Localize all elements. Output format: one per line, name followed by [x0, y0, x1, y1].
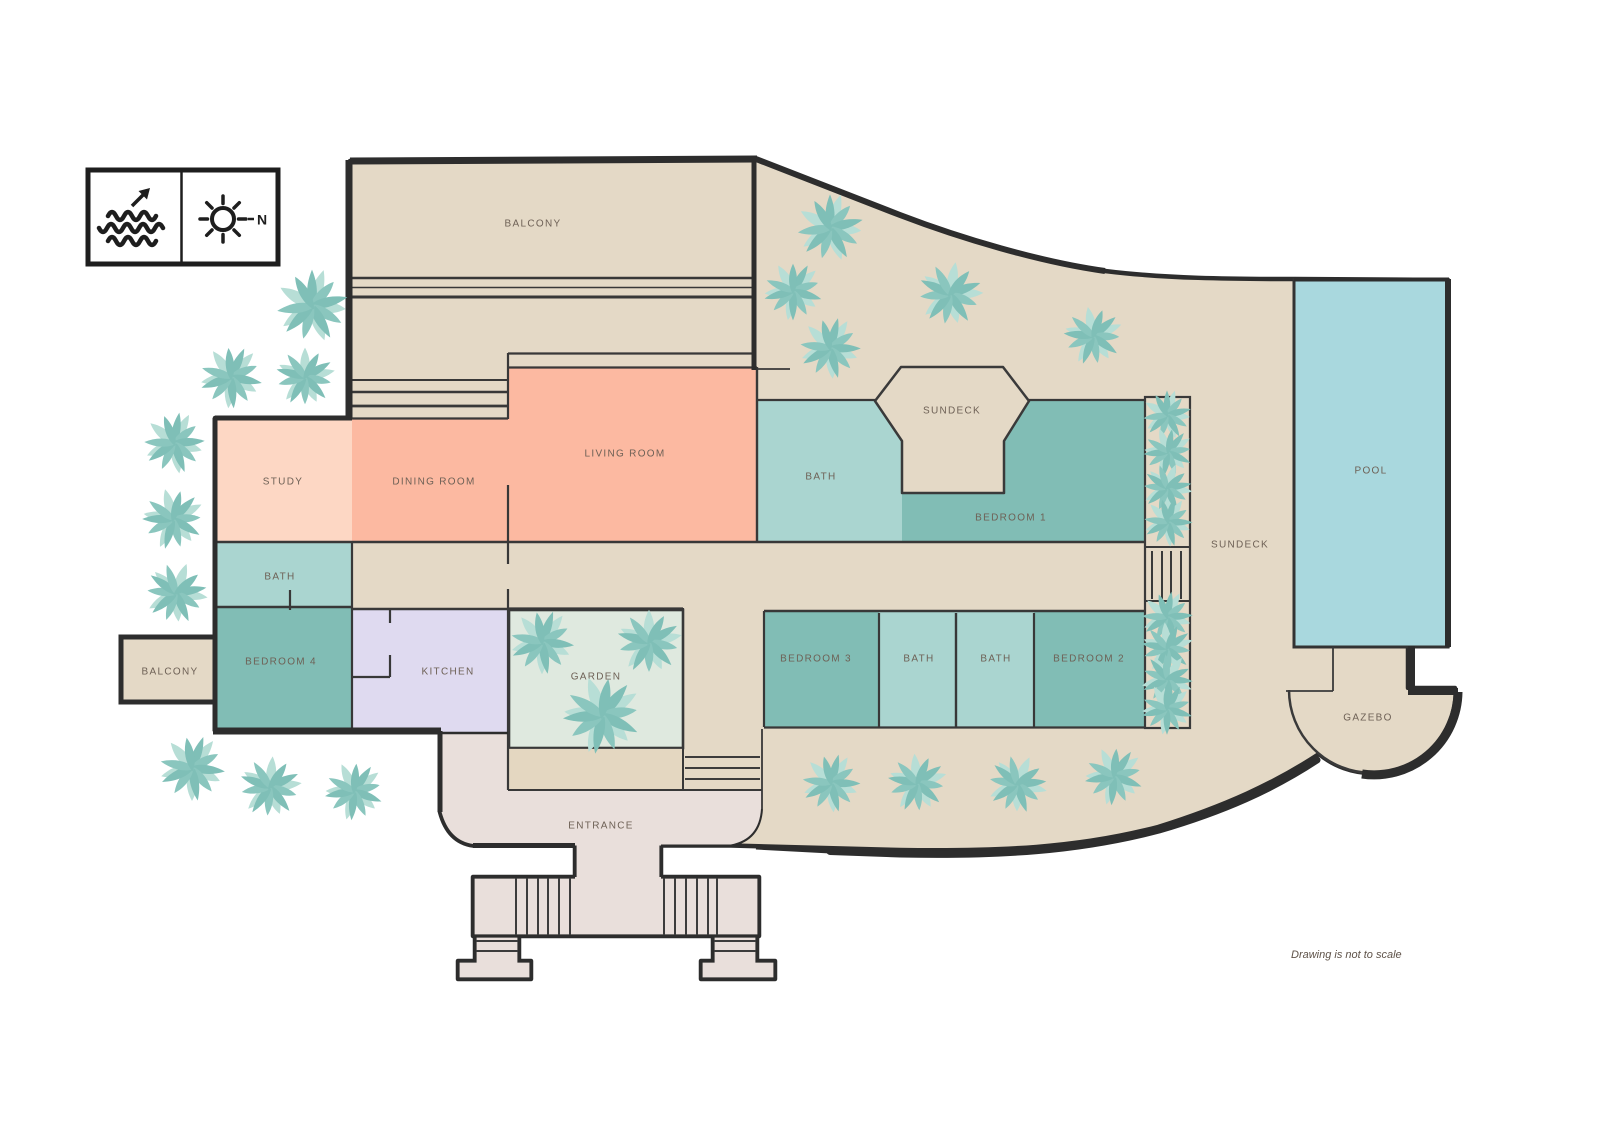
svg-text:N: N	[257, 212, 267, 228]
svg-text:Drawing is not to scale: Drawing is not to scale	[1291, 949, 1402, 961]
svg-text:ENTRANCE: ENTRANCE	[568, 821, 633, 832]
svg-text:BEDROOM 4: BEDROOM 4	[245, 657, 317, 668]
svg-text:SUNDECK: SUNDECK	[923, 406, 981, 417]
svg-text:BALCONY: BALCONY	[142, 667, 199, 678]
svg-text:LIVING ROOM: LIVING ROOM	[585, 449, 666, 460]
svg-text:POOL: POOL	[1355, 466, 1388, 477]
svg-text:KITCHEN: KITCHEN	[422, 667, 475, 678]
svg-text:BEDROOM 1: BEDROOM 1	[975, 513, 1047, 524]
svg-text:BATH: BATH	[805, 472, 836, 483]
svg-text:GARDEN: GARDEN	[571, 672, 622, 683]
svg-text:STUDY: STUDY	[263, 477, 303, 488]
svg-text:BEDROOM 3: BEDROOM 3	[780, 654, 852, 665]
svg-text:BATH: BATH	[903, 654, 934, 665]
svg-text:BEDROOM 2: BEDROOM 2	[1053, 654, 1125, 665]
svg-text:GAZEBO: GAZEBO	[1343, 713, 1392, 724]
svg-text:DINING ROOM: DINING ROOM	[392, 477, 475, 488]
svg-text:SUNDECK: SUNDECK	[1211, 540, 1269, 551]
svg-text:BALCONY: BALCONY	[505, 219, 562, 230]
svg-text:BATH: BATH	[980, 654, 1011, 665]
svg-text:BATH: BATH	[264, 572, 295, 583]
